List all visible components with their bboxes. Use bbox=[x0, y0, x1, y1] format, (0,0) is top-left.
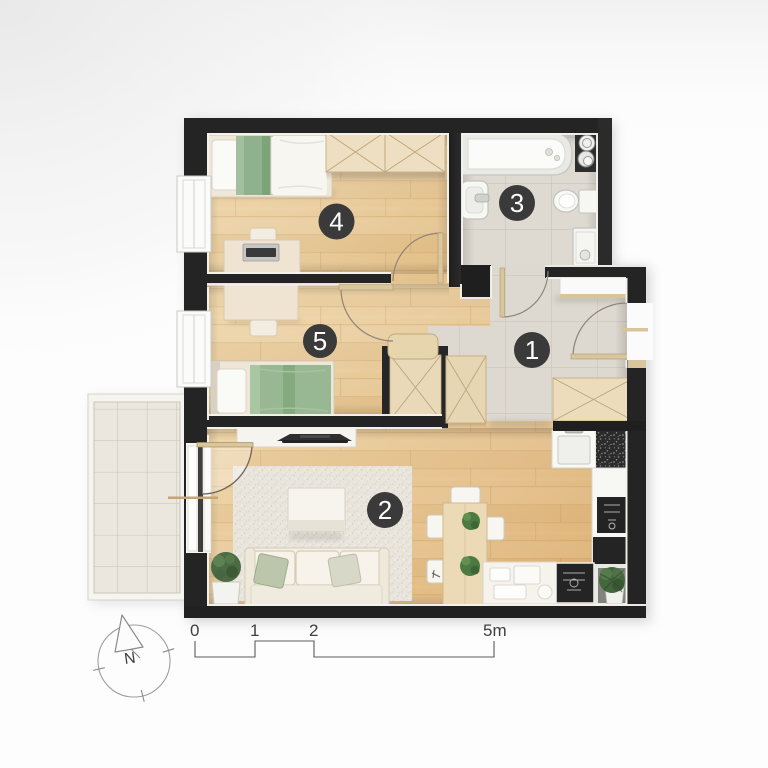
svg-text:1: 1 bbox=[525, 335, 539, 365]
svg-text:5m: 5m bbox=[483, 621, 507, 640]
svg-text:2: 2 bbox=[309, 621, 318, 640]
svg-text:1: 1 bbox=[250, 621, 259, 640]
svg-text:4: 4 bbox=[329, 207, 343, 237]
svg-text:5: 5 bbox=[313, 326, 327, 356]
svg-text:N: N bbox=[123, 650, 136, 668]
svg-text:0: 0 bbox=[190, 621, 199, 640]
svg-text:2: 2 bbox=[378, 495, 392, 525]
svg-text:3: 3 bbox=[510, 188, 524, 218]
